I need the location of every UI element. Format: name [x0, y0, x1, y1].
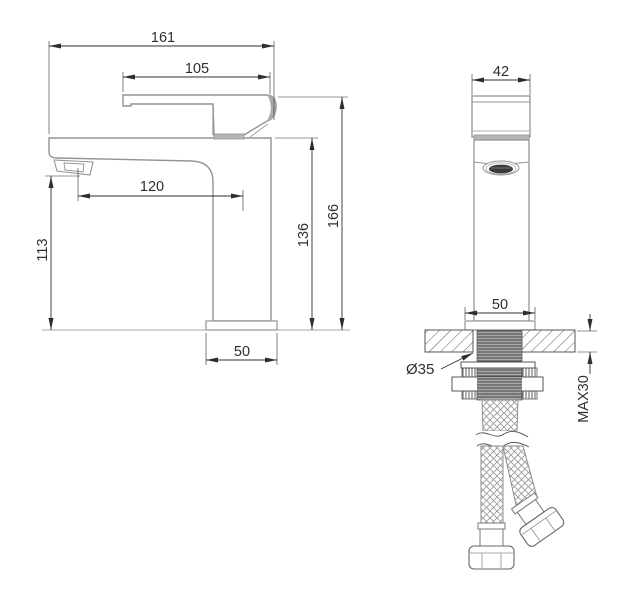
front-view: 42 50 Ø35 MAX30 — [406, 64, 597, 569]
dim-label-body-height: 136 — [296, 223, 312, 247]
dim-handle-length: 105 — [123, 61, 270, 94]
dim-label-side-base-width: 50 — [234, 344, 250, 360]
dim-label-total-length: 161 — [151, 30, 175, 46]
dim-label-spout-reach: 120 — [140, 179, 164, 195]
label-hole-diameter: Ø35 — [406, 361, 434, 378]
front-cartridge-ring — [474, 135, 529, 140]
side-aerator-face — [64, 163, 84, 172]
hose-left-ferrule — [480, 529, 503, 546]
hose-left-collar — [478, 523, 505, 529]
dim-label-total-height: 166 — [326, 204, 342, 228]
dim-label-handle-width: 42 — [493, 64, 509, 80]
dim-total-height: 166 — [278, 97, 348, 330]
dim-side-base-width: 50 — [206, 333, 277, 365]
front-base-plate — [465, 321, 535, 330]
dim-label-max-deck-thickness: MAX30 — [576, 375, 592, 423]
dim-body-height: 136 — [275, 138, 318, 330]
dim-max-deck-thickness: MAX30 — [576, 314, 597, 423]
side-cartridge-seat-shade — [214, 134, 244, 139]
hose-bundle-top — [482, 400, 518, 431]
shank-through-nut — [477, 377, 522, 391]
dim-label-front-base-width: 50 — [492, 297, 508, 313]
side-lever-handle — [123, 95, 276, 135]
dim-label-handle-length: 105 — [185, 61, 209, 77]
faucet-dimension-drawing: 161 105 120 113 136 — [0, 0, 631, 600]
dim-handle-width: 42 — [472, 64, 530, 95]
countertop-right — [522, 330, 575, 352]
hose-left — [481, 446, 503, 523]
dim-spout-height: 113 — [35, 176, 51, 330]
drawing-svg: 161 105 120 113 136 — [0, 0, 631, 600]
washer — [461, 362, 535, 368]
front-aerator-mesh — [489, 165, 513, 174]
hose-left-hex-nut — [469, 546, 514, 569]
dim-label-spout-height: 113 — [35, 238, 51, 261]
countertop-left — [425, 330, 473, 352]
side-view: 161 105 120 113 136 — [35, 30, 350, 365]
side-base-plate — [206, 321, 277, 330]
